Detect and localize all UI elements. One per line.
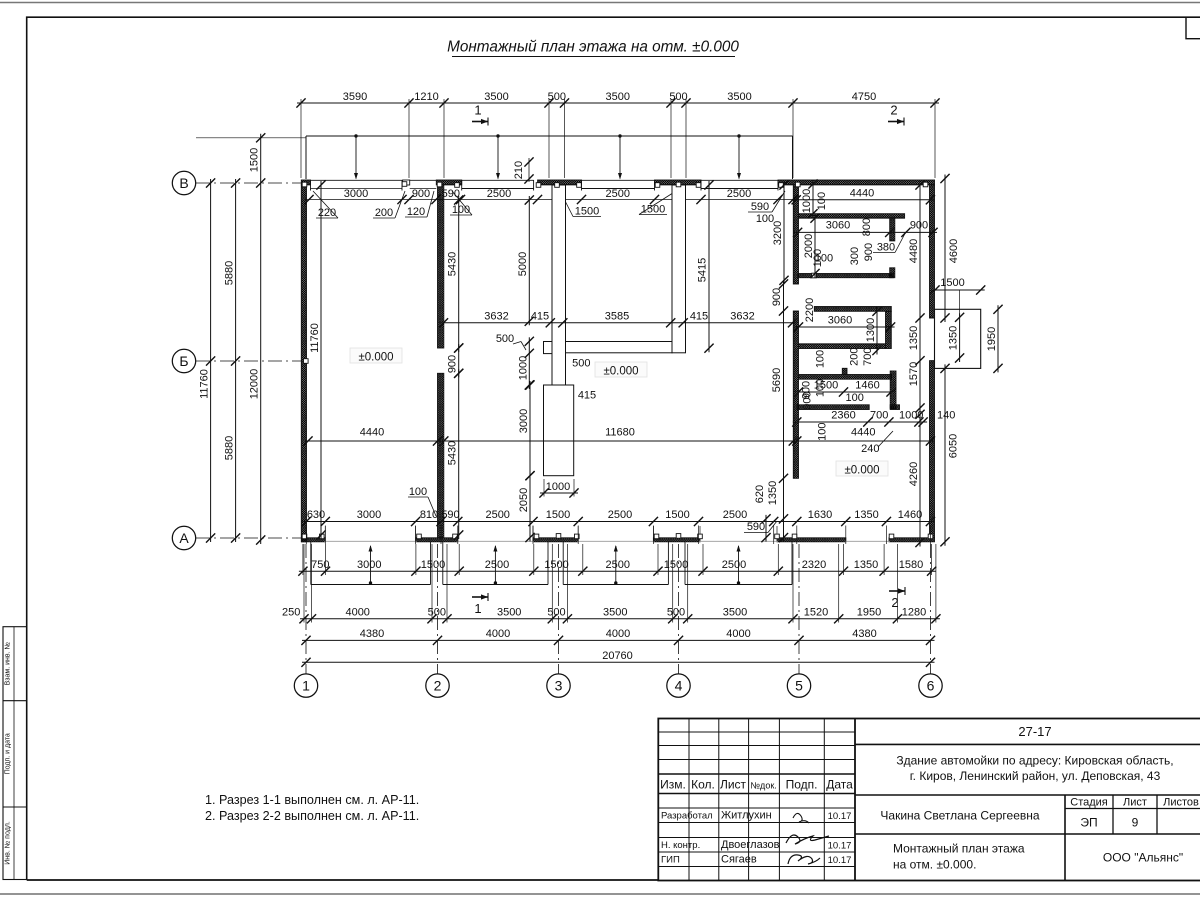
svg-text:415: 415 [578, 390, 596, 402]
svg-text:3632: 3632 [484, 310, 508, 322]
svg-text:±0.000: ±0.000 [603, 366, 638, 378]
svg-text:Здание автомойки по адресу: Ки: Здание автомойки по адресу: Кировская об… [896, 754, 1173, 768]
svg-text:750: 750 [311, 559, 329, 571]
svg-text:3000: 3000 [357, 559, 381, 571]
svg-text:6: 6 [927, 678, 935, 694]
svg-text:1500: 1500 [248, 148, 260, 172]
svg-text:500: 500 [428, 607, 446, 619]
svg-text:300: 300 [849, 247, 861, 265]
svg-text:±0.000: ±0.000 [844, 465, 879, 477]
svg-text:4000: 4000 [606, 628, 630, 640]
svg-text:11760: 11760 [198, 369, 210, 399]
svg-text:4440: 4440 [851, 427, 875, 439]
svg-text:Лист: Лист [1123, 797, 1147, 809]
svg-text:2500: 2500 [723, 509, 747, 521]
svg-text:1630: 1630 [808, 509, 832, 521]
svg-text:900: 900 [802, 391, 814, 409]
svg-text:4380: 4380 [852, 628, 876, 640]
svg-text:Инв. № подл.: Инв. № подл. [5, 821, 12, 865]
svg-text:1300: 1300 [865, 318, 877, 342]
svg-text:2050: 2050 [518, 488, 530, 512]
svg-text:380: 380 [877, 242, 895, 254]
svg-text:3500: 3500 [603, 607, 627, 619]
svg-text:10.17: 10.17 [828, 855, 852, 866]
svg-text:4480: 4480 [908, 239, 920, 263]
svg-text:А: А [179, 530, 189, 546]
svg-text:3000: 3000 [518, 409, 530, 433]
svg-text:1350: 1350 [908, 326, 920, 350]
svg-text:3000: 3000 [344, 188, 368, 200]
svg-text:5: 5 [795, 678, 803, 694]
svg-text:2500: 2500 [606, 559, 630, 571]
svg-text:1350: 1350 [948, 326, 960, 350]
svg-text:1500: 1500 [665, 509, 689, 521]
svg-text:20760: 20760 [602, 650, 633, 662]
svg-text:500: 500 [548, 91, 566, 103]
svg-text:1500: 1500 [421, 559, 445, 571]
svg-text:11760: 11760 [309, 323, 321, 353]
svg-text:900: 900 [412, 188, 430, 200]
svg-text:500: 500 [667, 607, 685, 619]
svg-text:2500: 2500 [485, 559, 509, 571]
svg-text:250: 250 [282, 607, 300, 619]
svg-text:1570: 1570 [908, 362, 920, 386]
svg-text:5415: 5415 [697, 258, 709, 282]
svg-text:630: 630 [307, 509, 325, 521]
svg-text:3060: 3060 [828, 315, 852, 327]
svg-text:3060: 3060 [826, 220, 850, 232]
svg-text:100: 100 [846, 392, 864, 404]
svg-text:810: 810 [420, 509, 438, 521]
svg-text:Житлухин: Житлухин [721, 810, 772, 822]
svg-text:2360: 2360 [831, 410, 855, 422]
svg-text:2500: 2500 [487, 188, 511, 200]
svg-text:5000: 5000 [517, 252, 529, 276]
svg-text:590: 590 [442, 188, 460, 200]
svg-text:2. Разрез 2-2 выполнен см. л.: 2. Разрез 2-2 выполнен см. л. АР-11. [205, 809, 419, 823]
svg-text:500: 500 [547, 607, 565, 619]
svg-text:3500: 3500 [497, 607, 521, 619]
svg-text:9: 9 [1132, 816, 1139, 830]
svg-text:1000: 1000 [517, 356, 529, 380]
svg-text:4000: 4000 [486, 628, 510, 640]
svg-text:1000: 1000 [899, 410, 923, 422]
svg-text:Кол.: Кол. [691, 778, 715, 792]
svg-text:1: 1 [302, 678, 310, 694]
svg-text:100: 100 [816, 423, 828, 441]
svg-text:Двоеглазов: Двоеглазов [721, 839, 780, 851]
svg-text:3500: 3500 [606, 91, 630, 103]
svg-text:№док.: №док. [750, 781, 776, 791]
svg-text:100: 100 [815, 253, 833, 265]
svg-text:590: 590 [441, 509, 459, 521]
svg-text:2500: 2500 [485, 509, 509, 521]
svg-text:1460: 1460 [898, 509, 922, 521]
svg-text:4440: 4440 [360, 427, 384, 439]
svg-text:11680: 11680 [605, 427, 635, 439]
svg-text:1500: 1500 [664, 559, 688, 571]
svg-text:4440: 4440 [850, 188, 874, 200]
svg-text:3500: 3500 [723, 607, 747, 619]
svg-text:на отм. ±0.000.: на отм. ±0.000. [893, 858, 976, 872]
svg-text:3590: 3590 [343, 91, 367, 103]
svg-text:900: 900 [863, 243, 875, 261]
svg-text:5880: 5880 [223, 261, 235, 285]
svg-text:1210: 1210 [414, 91, 438, 103]
svg-text:2: 2 [890, 103, 897, 118]
svg-text:Чакина Светлана Сергеевна: Чакина Светлана Сергеевна [880, 809, 1039, 823]
svg-text:900: 900 [446, 355, 458, 373]
svg-text:5430: 5430 [446, 252, 458, 276]
svg-text:Разработал: Разработал [661, 811, 713, 822]
svg-text:5880: 5880 [223, 436, 235, 460]
svg-text:Монтажный план этажа на отм. ±: Монтажный план этажа на отм. ±0.000 [447, 39, 739, 56]
svg-text:4380: 4380 [360, 628, 384, 640]
svg-text:100: 100 [409, 486, 427, 498]
svg-text:3632: 3632 [730, 310, 754, 322]
svg-text:1350: 1350 [854, 559, 878, 571]
svg-text:Подп.: Подп. [786, 778, 818, 792]
svg-text:10.17: 10.17 [828, 841, 852, 852]
svg-text:27-17: 27-17 [1018, 724, 1051, 739]
svg-text:10.17: 10.17 [828, 811, 852, 822]
svg-text:120: 120 [407, 206, 425, 218]
svg-text:3: 3 [555, 678, 563, 694]
svg-text:±0.000: ±0.000 [358, 352, 393, 364]
svg-text:4750: 4750 [852, 91, 876, 103]
svg-text:Стадия: Стадия [1070, 797, 1108, 809]
svg-text:ООО "Альянс": ООО "Альянс" [1103, 851, 1183, 865]
svg-text:1500: 1500 [544, 559, 568, 571]
svg-text:100: 100 [816, 192, 828, 210]
svg-text:ГИП: ГИП [661, 855, 680, 866]
svg-text:200: 200 [375, 207, 393, 219]
svg-text:Сягаев: Сягаев [721, 854, 757, 866]
svg-text:1000: 1000 [546, 481, 570, 493]
svg-text:1950: 1950 [857, 607, 881, 619]
svg-text:1: 1 [474, 103, 481, 118]
svg-text:100: 100 [815, 350, 827, 368]
svg-text:1520: 1520 [804, 607, 828, 619]
svg-text:Изм.: Изм. [660, 778, 686, 792]
svg-text:В: В [179, 175, 188, 191]
svg-text:2500: 2500 [608, 509, 632, 521]
svg-text:4000: 4000 [726, 628, 750, 640]
svg-text:500: 500 [572, 358, 590, 370]
svg-text:200: 200 [849, 348, 861, 366]
svg-text:5690: 5690 [771, 368, 783, 392]
svg-text:Листов: Листов [1163, 797, 1199, 809]
svg-text:2500: 2500 [606, 188, 630, 200]
svg-text:1950: 1950 [986, 327, 998, 351]
svg-text:3000: 3000 [357, 509, 381, 521]
svg-text:г. Киров, Ленинский район, ул.: г. Киров, Ленинский район, ул. Деповская… [910, 769, 1161, 783]
svg-text:500: 500 [669, 91, 687, 103]
svg-text:Дата: Дата [826, 778, 853, 792]
svg-text:415: 415 [531, 310, 549, 322]
svg-text:Монтажный план этажа: Монтажный план этажа [893, 842, 1025, 856]
svg-text:Б: Б [179, 353, 188, 369]
svg-text:Взам. инв. №: Взам. инв. № [5, 642, 12, 685]
svg-text:1280: 1280 [902, 607, 926, 619]
svg-text:Подп. и дата: Подп. и дата [5, 733, 12, 774]
svg-text:1500: 1500 [546, 509, 570, 521]
svg-text:800: 800 [861, 218, 873, 236]
svg-text:6050: 6050 [948, 434, 960, 458]
svg-text:500: 500 [496, 333, 514, 345]
svg-text:4600: 4600 [948, 239, 960, 263]
svg-text:1: 1 [474, 601, 481, 616]
svg-text:620: 620 [754, 485, 766, 503]
svg-text:Н. контр.: Н. контр. [661, 840, 700, 851]
svg-text:140: 140 [937, 410, 955, 422]
svg-text:1460: 1460 [855, 380, 879, 392]
svg-text:900: 900 [771, 288, 783, 306]
svg-text:4: 4 [675, 678, 683, 694]
svg-text:1350: 1350 [854, 509, 878, 521]
svg-text:1350: 1350 [767, 481, 779, 505]
svg-text:2500: 2500 [727, 188, 751, 200]
svg-text:1500: 1500 [575, 206, 599, 218]
svg-text:3500: 3500 [727, 91, 751, 103]
svg-text:1. Разрез 1-1 выполнен см. л.: 1. Разрез 1-1 выполнен см. л. АР-11. [205, 793, 419, 807]
svg-text:2200: 2200 [804, 298, 816, 322]
svg-text:ЭП: ЭП [1080, 816, 1097, 830]
svg-text:210: 210 [513, 161, 525, 179]
svg-text:3500: 3500 [484, 91, 508, 103]
svg-text:3585: 3585 [605, 310, 629, 322]
svg-text:Лист: Лист [720, 778, 747, 792]
svg-text:700: 700 [862, 348, 874, 366]
svg-text:1580: 1580 [899, 559, 923, 571]
svg-text:2500: 2500 [722, 559, 746, 571]
svg-text:5430: 5430 [446, 441, 458, 465]
svg-text:4000: 4000 [345, 607, 369, 619]
svg-text:12000: 12000 [248, 369, 260, 400]
svg-text:2320: 2320 [802, 559, 826, 571]
svg-text:240: 240 [861, 443, 879, 455]
svg-text:2: 2 [434, 678, 442, 694]
svg-text:900: 900 [910, 220, 928, 232]
svg-text:590: 590 [751, 201, 769, 213]
svg-text:415: 415 [690, 310, 708, 322]
svg-text:100: 100 [815, 379, 827, 397]
svg-text:590: 590 [747, 521, 765, 533]
svg-text:1000: 1000 [801, 189, 813, 213]
svg-text:1500: 1500 [940, 277, 964, 289]
svg-text:4260: 4260 [908, 462, 920, 486]
svg-text:700: 700 [870, 410, 888, 422]
svg-text:3200: 3200 [772, 221, 784, 245]
